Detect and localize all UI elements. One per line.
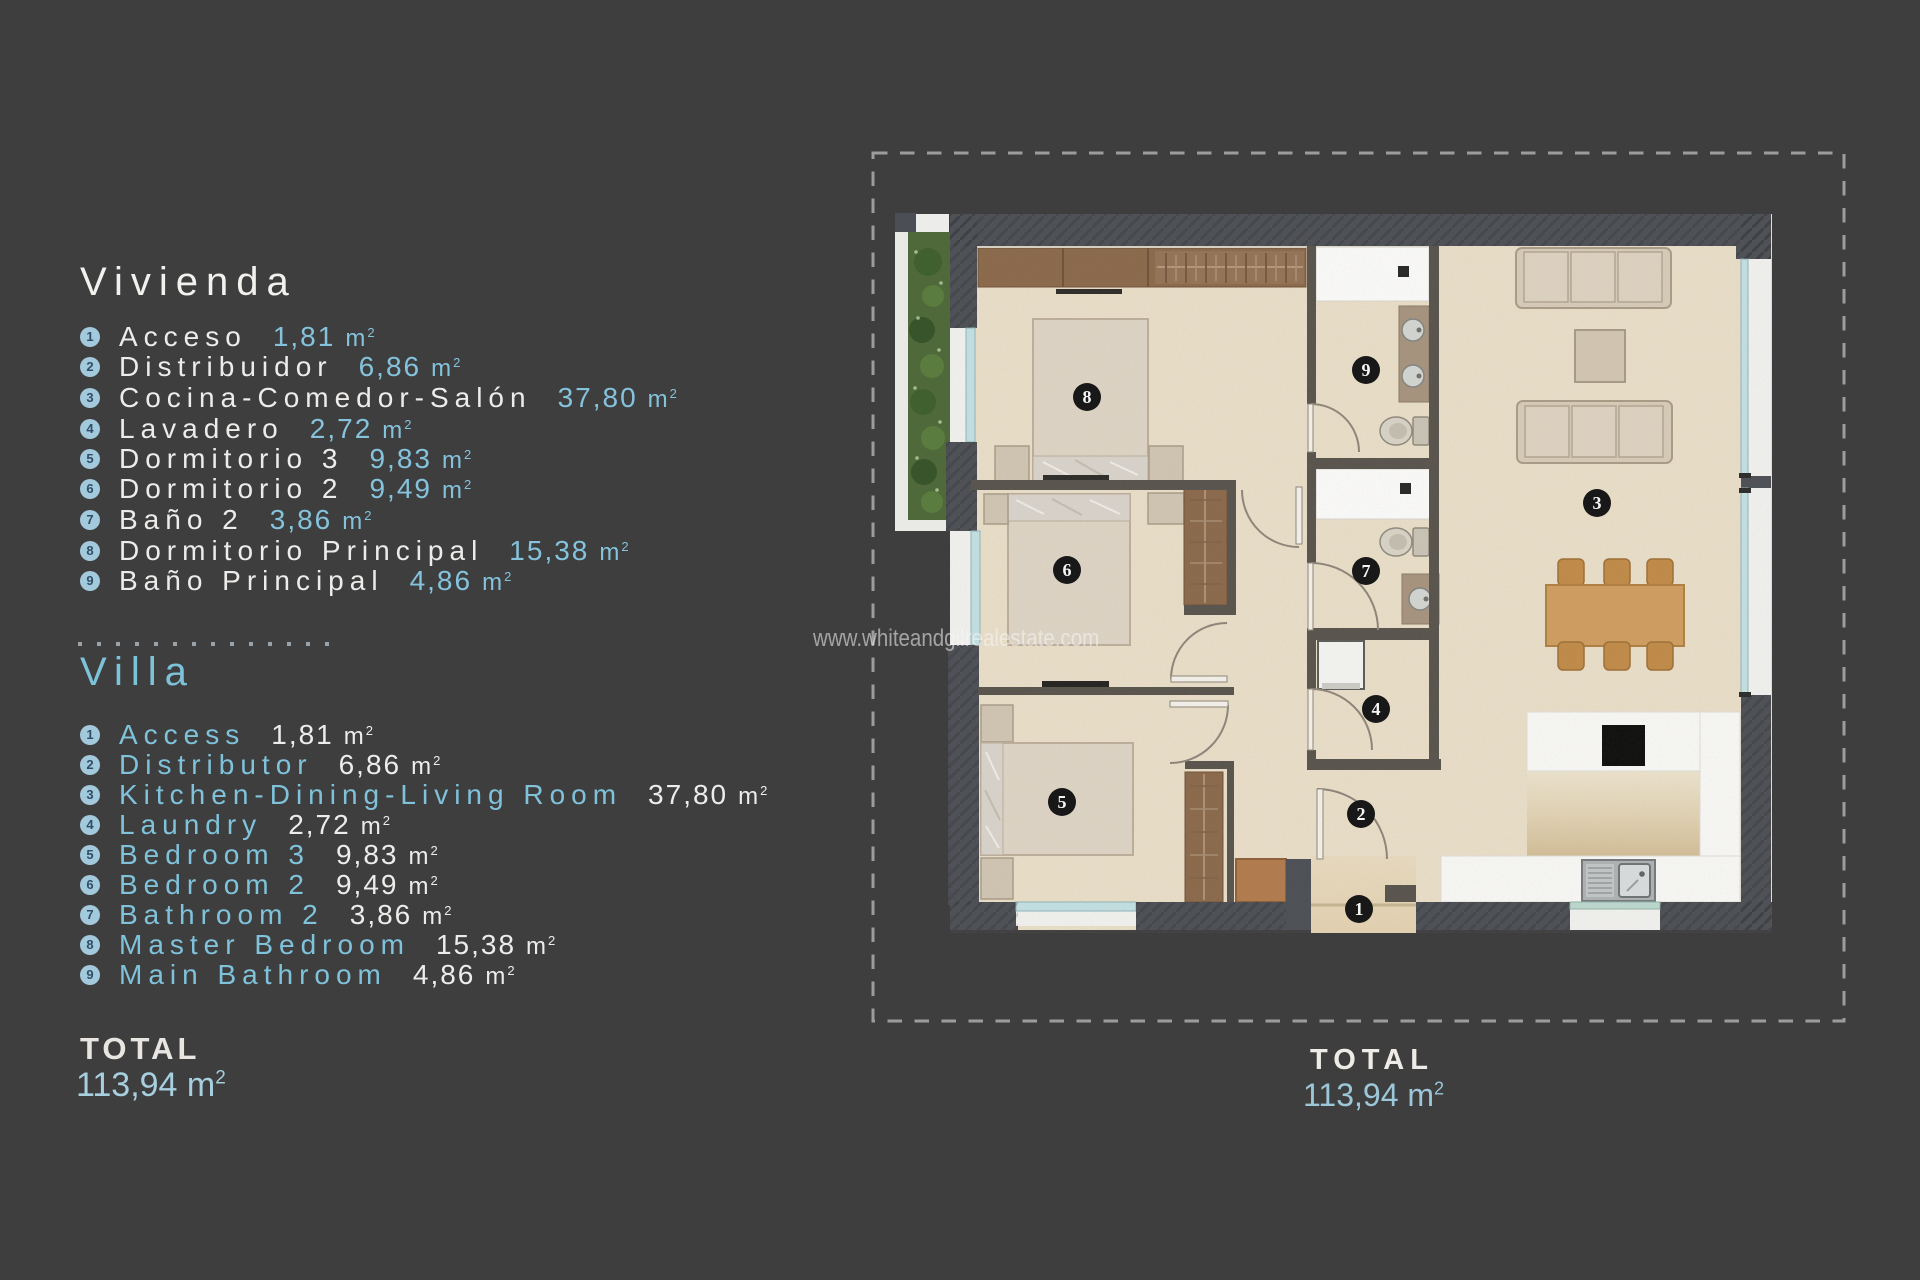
svg-text:7: 7 xyxy=(1362,561,1371,581)
svg-text:5: 5 xyxy=(1058,792,1067,812)
svg-text:8: 8 xyxy=(1083,387,1092,407)
svg-text:4: 4 xyxy=(1372,699,1381,719)
svg-text:6: 6 xyxy=(1063,560,1072,580)
svg-text:3: 3 xyxy=(1593,493,1602,513)
svg-text:2: 2 xyxy=(1357,804,1366,824)
svg-text:9: 9 xyxy=(1362,360,1371,380)
svg-text:1: 1 xyxy=(1355,899,1364,919)
